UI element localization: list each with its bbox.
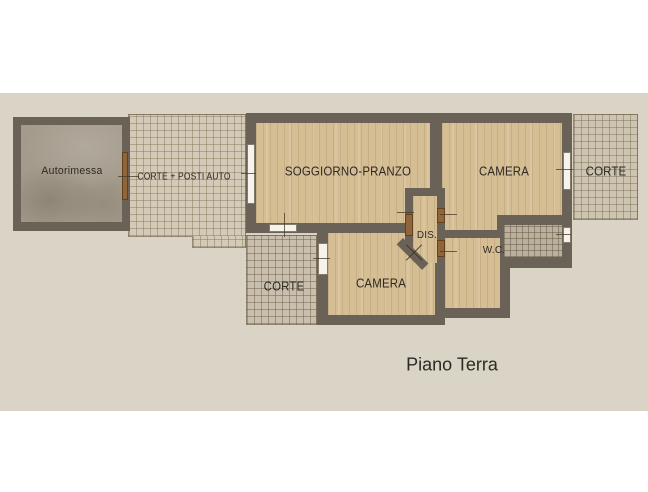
- label-autorimessa: Autorimessa: [41, 165, 102, 177]
- window-patio-right: [563, 227, 571, 243]
- tick-window-soggiorno-left: [241, 173, 256, 174]
- door-dis-camera: [437, 208, 445, 223]
- window-camera-right: [563, 152, 571, 190]
- floor-plan-canvas: Autorimessa CORTE + POSTI AUTO SOGGIORNO…: [0, 0, 648, 492]
- tick-garage-door: [118, 176, 139, 177]
- patio-notch-tiles: [504, 225, 562, 257]
- tick-window-camera-right: [556, 169, 573, 170]
- label-corte-posti-auto: CORTE + POSTI AUTO: [137, 172, 230, 183]
- tick-door-dis-camera: [440, 214, 457, 215]
- tick-door-corte-camera: [313, 258, 330, 259]
- door-soggiorno-dis: [405, 214, 413, 236]
- label-camera-top: CAMERA: [479, 164, 529, 179]
- window-soggiorno-left: [247, 144, 255, 204]
- window-soggiorno-bottom: [269, 224, 297, 232]
- tick-door-dis-wc: [440, 251, 457, 252]
- label-corte-right: CORTE: [586, 164, 627, 179]
- tick-door-soggiorno-dis: [397, 212, 414, 213]
- label-camera-bottom: CAMERA: [356, 276, 406, 291]
- label-wc: W.C.: [483, 244, 505, 256]
- label-soggiorno-pranzo: SOGGIORNO-PRANZO: [285, 164, 411, 179]
- door-dis-wc: [437, 240, 445, 257]
- label-dis: DIS.: [417, 229, 437, 241]
- page-title: Piano Terra: [406, 355, 498, 376]
- tick-window-soggiorno-bottom: [284, 213, 285, 237]
- door-corte-camera: [318, 243, 328, 275]
- tick-window-patio-right: [556, 234, 571, 235]
- label-corte-bottom: CORTE: [264, 279, 305, 294]
- courtyard-parking-area-extension: [192, 236, 246, 248]
